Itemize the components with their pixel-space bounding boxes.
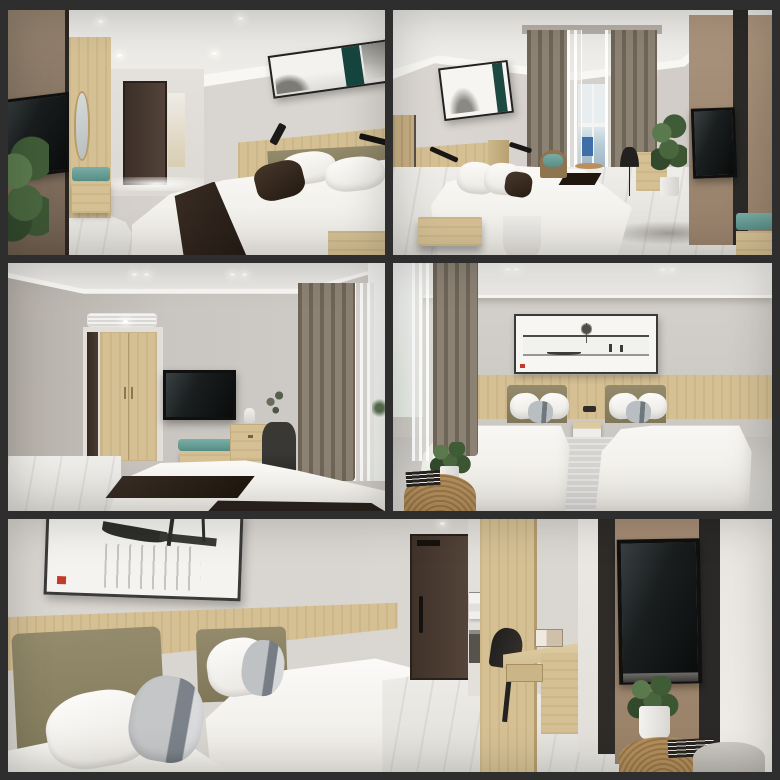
- nightstand: [328, 231, 385, 256]
- wardrobe-door-split: [128, 333, 129, 459]
- ceiling-spotlight: [670, 268, 675, 271]
- ink-mast: [201, 519, 205, 542]
- book-stack: [406, 470, 441, 487]
- window-building: [581, 137, 593, 156]
- desk-drawer: [506, 664, 543, 681]
- desk-side-panel: [541, 653, 579, 734]
- framed-ink-painting: [514, 314, 658, 374]
- panel-king-room-window-view: [393, 10, 772, 255]
- drape: [433, 263, 478, 456]
- plant-pot: [639, 706, 670, 739]
- luggage-bench-base: [72, 182, 110, 214]
- red-seal: [56, 576, 66, 585]
- nightstand-floating: [418, 217, 482, 246]
- switch-panel: [583, 406, 596, 412]
- red-seal: [520, 364, 524, 368]
- tv-large: [616, 539, 701, 685]
- window-mullion: [578, 123, 608, 127]
- desk-decor: [535, 629, 563, 647]
- open-door-dark: [87, 332, 98, 458]
- ceiling-spotlight: [212, 52, 217, 55]
- rattan-chair: [540, 150, 567, 178]
- closet-niche: [168, 93, 185, 167]
- dry-plant: [257, 385, 291, 427]
- panoramic-ink-artwork: [438, 60, 514, 121]
- humidifier: [244, 408, 255, 423]
- teal-art-band: [491, 63, 507, 113]
- window: [578, 84, 608, 170]
- floor: [8, 456, 121, 511]
- ceiling-spotlight: [242, 273, 247, 276]
- door-closer: [417, 540, 440, 546]
- entry-door: [410, 534, 472, 680]
- ink-mountains: [447, 81, 482, 114]
- media-wall-dark-strip: [699, 519, 722, 767]
- bed-throw: [503, 216, 541, 255]
- panel-room-tv-wall-view: [8, 263, 385, 511]
- desk-chair: [620, 147, 639, 196]
- door-handle: [419, 596, 424, 633]
- chair-cushion: [543, 154, 563, 168]
- ceiling-spotlight: [505, 268, 510, 271]
- wardrobe-handle: [124, 387, 126, 400]
- wardrobe-handle: [131, 387, 133, 400]
- potted-plant: [651, 113, 687, 179]
- drape: [298, 283, 355, 481]
- lounge-chair: [693, 742, 766, 772]
- ceiling-spotlight: [144, 273, 149, 276]
- plant-pot: [660, 177, 679, 197]
- corridor-spotlight: [123, 320, 128, 323]
- desk-drawer-knob: [248, 435, 253, 438]
- outdoor-green: [372, 397, 385, 419]
- panel-twin-room-front-view: [393, 263, 772, 511]
- ink-boat-hull: [101, 521, 167, 545]
- bed-runner-dark: [105, 476, 254, 498]
- media-wall-dark-strip: [598, 519, 616, 754]
- ink-reflection: [104, 544, 201, 591]
- sheer-curtain: [353, 283, 374, 481]
- ink-cliff: [361, 40, 385, 79]
- ink-tree: [581, 323, 592, 343]
- tv: [163, 370, 237, 421]
- panel-twin-room-closeup: [8, 519, 772, 772]
- luggage-bench-cushion: [736, 213, 772, 230]
- hotel-room-photo-collage: [0, 0, 780, 780]
- luggage-bench-cushion: [72, 167, 110, 182]
- luggage-bench-base: [736, 231, 772, 256]
- teal-art-band: [341, 45, 364, 86]
- ink-door-mark: [620, 345, 623, 352]
- ink-door-mark: [609, 344, 613, 352]
- wardrobe: [100, 332, 157, 460]
- wall-white-strip: [578, 519, 599, 752]
- framed-ink-boat-painting: [43, 519, 243, 602]
- ceiling-spotlight: [440, 522, 445, 525]
- tv: [691, 107, 737, 178]
- luggage-bench-cushion: [178, 439, 238, 451]
- accent-pillow-dark: [503, 170, 533, 198]
- accent-pillow-gray: [625, 400, 651, 424]
- ac-vent: [87, 313, 157, 327]
- accent-pillow-gray: [527, 400, 553, 424]
- panel-king-room-bed-view: [8, 10, 385, 255]
- ink-mountains: [274, 67, 314, 94]
- floor-plant: [8, 133, 49, 256]
- entry-door: [123, 81, 167, 185]
- wall-right-light: [720, 519, 772, 772]
